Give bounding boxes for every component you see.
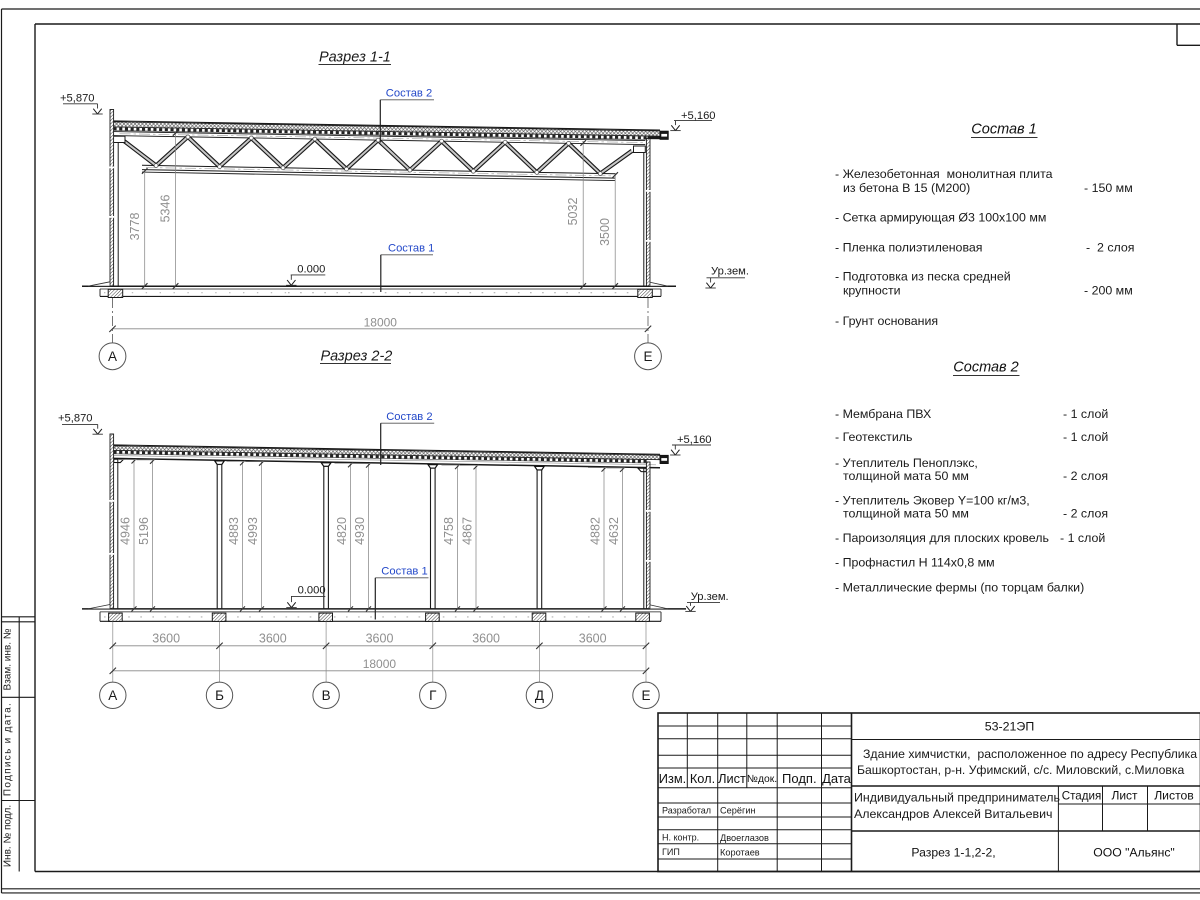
svg-text:Состав 2: Состав 2 bbox=[953, 360, 1018, 376]
svg-text:53-21ЭП: 53-21ЭП bbox=[985, 720, 1035, 734]
svg-text:- Пароизоляция для плоских кро: - Пароизоляция для плоских кровель bbox=[835, 531, 1049, 545]
svg-text:Разрез 1-1: Разрез 1-1 bbox=[319, 50, 391, 66]
svg-text:5196: 5196 bbox=[137, 517, 151, 545]
svg-text:Г: Г bbox=[429, 688, 437, 703]
svg-text:4820: 4820 bbox=[335, 517, 349, 545]
svg-text:3600: 3600 bbox=[152, 631, 180, 645]
svg-text:- Пленка полиэтиленовая: - Пленка полиэтиленовая bbox=[835, 241, 983, 255]
svg-text:Е: Е bbox=[641, 688, 650, 703]
svg-text:Состав 1: Состав 1 bbox=[388, 242, 434, 254]
svg-text:- 1 слой: - 1 слой bbox=[1063, 430, 1108, 444]
svg-text:ООО "Альянс": ООО "Альянс" bbox=[1093, 846, 1175, 860]
svg-text:ГИП: ГИП bbox=[662, 847, 680, 857]
svg-text:Состав 2: Состав 2 bbox=[386, 411, 432, 423]
svg-text:Подп.: Подп. bbox=[782, 771, 817, 786]
svg-text:Здание химчистки, расположенн: Здание химчистки, расположенное по адрес… bbox=[863, 747, 1197, 761]
svg-text:толщиной мата 50 мм: толщиной мата 50 мм bbox=[843, 469, 969, 483]
svg-text:толщиной мата 50 мм: толщиной мата 50 мм bbox=[843, 507, 969, 521]
svg-text:- 1 слой: - 1 слой bbox=[1063, 407, 1108, 421]
svg-text:Взам. инв. №: Взам. инв. № bbox=[3, 628, 14, 690]
svg-text:3600: 3600 bbox=[366, 631, 394, 645]
svg-text:4867: 4867 bbox=[461, 517, 475, 545]
svg-text:Стадия: Стадия bbox=[1062, 790, 1102, 803]
svg-text:Александров Алексей Витальевич: Александров Алексей Витальевич bbox=[854, 807, 1052, 821]
svg-text:- 2 слоя: - 2 слоя bbox=[1063, 507, 1108, 521]
svg-text:Разрез 1-1,2-2,: Разрез 1-1,2-2, bbox=[911, 846, 995, 860]
svg-text:- Грунт основания: - Грунт основания bbox=[835, 314, 938, 328]
svg-text:Лист: Лист bbox=[1111, 789, 1138, 803]
svg-text:А: А bbox=[108, 349, 117, 364]
svg-text:3500: 3500 bbox=[598, 218, 612, 246]
svg-text:Разработал: Разработал bbox=[662, 806, 711, 816]
svg-text:Ур.зем.: Ур.зем. bbox=[711, 266, 749, 278]
svg-text:№док.: №док. bbox=[747, 774, 777, 785]
svg-text:Состав 2: Состав 2 bbox=[386, 87, 432, 99]
svg-text:- Утеплитель Пеноплэкс,: - Утеплитель Пеноплэкс, bbox=[835, 456, 978, 470]
svg-text:0.000: 0.000 bbox=[297, 264, 325, 276]
svg-text:4882: 4882 bbox=[589, 517, 603, 545]
svg-text:Индивидуальный предприниматель: Индивидуальный предприниматель bbox=[854, 791, 1060, 805]
svg-text:из бетона В 15 (М200): из бетона В 15 (М200) bbox=[843, 181, 970, 195]
svg-text:+5,160: +5,160 bbox=[677, 434, 712, 446]
svg-text:Состав 1: Состав 1 bbox=[381, 565, 427, 577]
svg-text:- Сетка армирующая Ø3 100х100: - Сетка армирующая Ø3 100х100 мм bbox=[835, 211, 1046, 225]
svg-text:Подпись и дата.: Подпись и дата. bbox=[3, 702, 14, 796]
svg-text:- 1 слой: - 1 слой bbox=[1060, 531, 1105, 545]
svg-text:В: В bbox=[322, 688, 331, 703]
svg-text:- 2 слоя: - 2 слоя bbox=[1086, 241, 1135, 255]
svg-text:18000: 18000 bbox=[363, 657, 397, 671]
svg-text:- Мембрана ПВХ: - Мембрана ПВХ bbox=[835, 407, 931, 421]
svg-text:Листов: Листов bbox=[1154, 789, 1194, 803]
svg-text:Инв. № подл.: Инв. № подл. bbox=[3, 805, 14, 867]
svg-text:3600: 3600 bbox=[472, 631, 500, 645]
svg-text:Н. контр.: Н. контр. bbox=[662, 833, 699, 843]
svg-text:Состав 1: Состав 1 bbox=[971, 122, 1036, 138]
svg-text:+5,870: +5,870 bbox=[60, 93, 95, 105]
svg-text:Башкортостан, р-н. Уфимский, с: Башкортостан, р-н. Уфимский, с/с. Миловс… bbox=[857, 763, 1184, 777]
svg-text:- Профнастил Н 114х0,8 мм: - Профнастил Н 114х0,8 мм bbox=[835, 556, 995, 570]
svg-text:- 150 мм: - 150 мм bbox=[1084, 181, 1133, 195]
svg-text:Лист: Лист bbox=[718, 771, 746, 786]
svg-text:3778: 3778 bbox=[128, 213, 142, 241]
svg-text:4758: 4758 bbox=[442, 517, 456, 545]
svg-text:- 2 слоя: - 2 слоя bbox=[1063, 469, 1108, 483]
svg-text:Изм.: Изм. bbox=[659, 771, 686, 786]
svg-text:- 200 мм: - 200 мм bbox=[1084, 284, 1133, 298]
svg-text:Б: Б bbox=[215, 688, 224, 703]
svg-text:- Утеплитель Эковер Y=100 кг/м: - Утеплитель Эковер Y=100 кг/м3, bbox=[835, 494, 1030, 508]
svg-text:+5,870: +5,870 bbox=[58, 413, 93, 425]
svg-text:Е: Е bbox=[643, 349, 652, 364]
svg-text:А: А bbox=[108, 688, 117, 703]
svg-text:18000: 18000 bbox=[364, 315, 398, 329]
svg-text:крупности: крупности bbox=[843, 284, 901, 298]
svg-text:- Металлические фермы (по торц: - Металлические фермы (по торцам балки) bbox=[835, 581, 1084, 595]
svg-text:Д: Д bbox=[535, 688, 544, 703]
svg-text:4993: 4993 bbox=[246, 517, 260, 545]
svg-text:5032: 5032 bbox=[566, 198, 580, 226]
svg-text:4632: 4632 bbox=[607, 517, 621, 545]
svg-text:Кол.: Кол. bbox=[690, 771, 715, 786]
svg-text:0.000: 0.000 bbox=[298, 585, 326, 597]
svg-text:Ур.зем.: Ур.зем. bbox=[691, 591, 729, 603]
svg-text:4930: 4930 bbox=[353, 517, 367, 545]
svg-text:3600: 3600 bbox=[579, 631, 607, 645]
svg-text:Серёгин: Серёгин bbox=[720, 806, 756, 816]
svg-text:Двоеглазов: Двоеглазов bbox=[720, 833, 769, 843]
svg-text:- Подготовка из песка средней: - Подготовка из песка средней bbox=[835, 270, 1011, 284]
svg-text:Коротаев: Коротаев bbox=[720, 848, 760, 858]
svg-text:Дата: Дата bbox=[822, 771, 852, 786]
svg-text:4946: 4946 bbox=[119, 517, 133, 545]
svg-text:5346: 5346 bbox=[158, 195, 172, 223]
svg-text:- Геотекстиль: - Геотекстиль bbox=[835, 430, 912, 444]
svg-text:4883: 4883 bbox=[227, 517, 241, 545]
svg-text:3600: 3600 bbox=[259, 631, 287, 645]
svg-text:- Железобетонная монолитная п: - Железобетонная монолитная плита bbox=[835, 167, 1053, 181]
svg-text:Разрез 2-2: Разрез 2-2 bbox=[321, 349, 393, 365]
